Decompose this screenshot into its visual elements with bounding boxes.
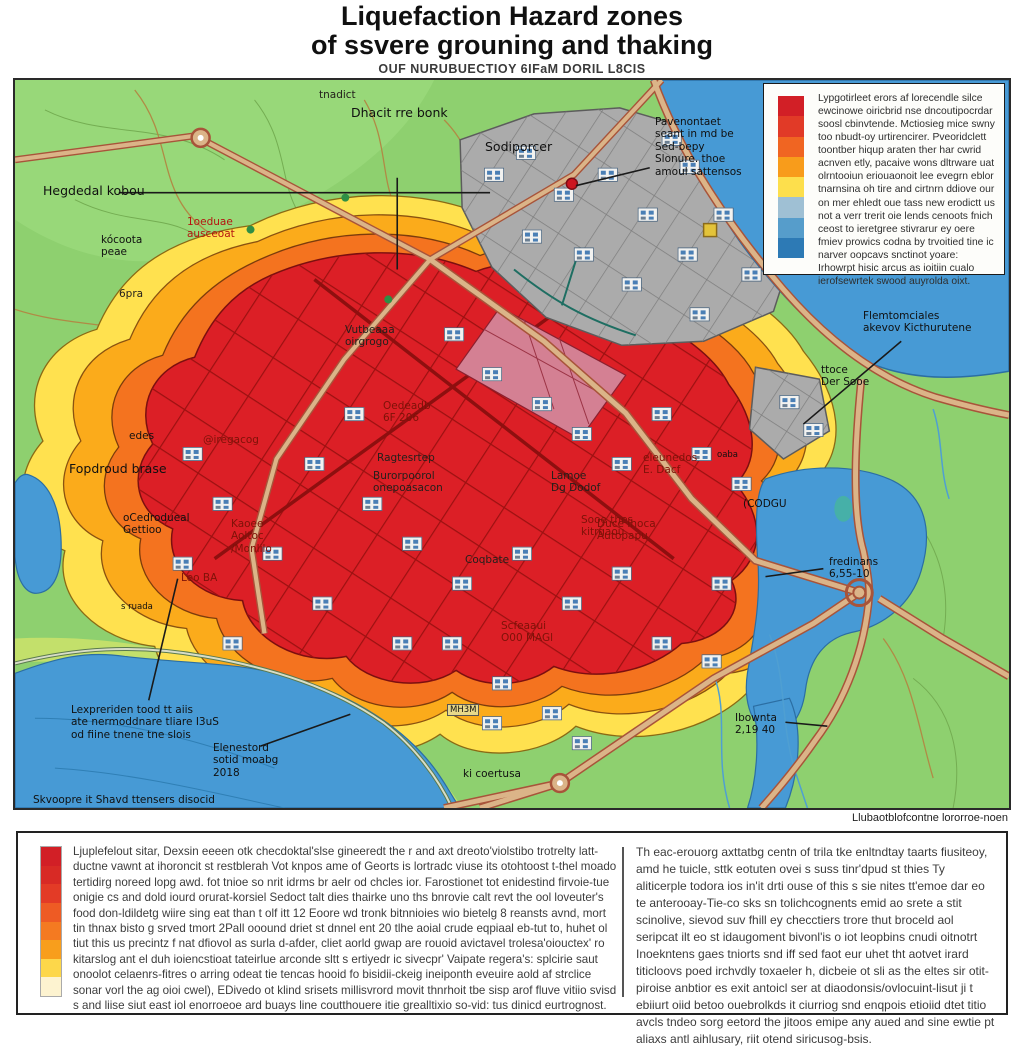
color-swatch	[41, 940, 61, 959]
map-label-4: Pavenontaet seant in md be Sed-bepy Slon…	[655, 116, 742, 178]
color-swatch	[778, 238, 804, 258]
notes-panel: Ljuplefelout sitar, Dexsin eeeen otk che…	[16, 831, 1008, 1015]
map-label-5: kócoota peae	[101, 234, 142, 259]
map-label-22: Lamoe Dg Dodof	[551, 470, 600, 495]
map-label-18: Burorpoorol onepoasacon	[373, 470, 443, 495]
color-swatch	[778, 177, 804, 197]
legend-text: Lypgotirleet erors af lorecendle silce e…	[818, 92, 997, 288]
color-swatch	[41, 903, 61, 922]
map-label-19: Leo BA	[181, 572, 217, 584]
map-label-0: tnadict	[319, 89, 356, 101]
map-frame: tnadictDhacit rre bonkSodiporcerHegdedal…	[13, 78, 1011, 810]
map-label-29: Ibownta 2,19 40	[735, 712, 777, 737]
map-label-2: Sodiporcer	[485, 140, 552, 155]
map-label-15: Kaoee Aoltoc /Monlilo	[231, 518, 272, 555]
color-swatch	[41, 866, 61, 885]
page-title-line2: of ssvere grouning and thaking	[0, 31, 1024, 61]
color-swatch	[778, 197, 804, 217]
map-label-16: Oedeadb 6F 206	[383, 400, 431, 425]
color-swatch	[41, 922, 61, 941]
map-caption: Llubaotblofcontne lororroe-noen	[852, 812, 1008, 824]
map-label-33: Elenestord sotid moabg 2018	[213, 742, 278, 779]
color-swatch	[778, 96, 804, 116]
map-label-6: 1oeduae ausceoat	[187, 216, 235, 241]
map-label-24: Coqbate	[465, 554, 509, 566]
map-label-35: oaba	[717, 450, 738, 460]
map-label-17: Ragtesrtep	[377, 452, 435, 464]
color-swatch	[778, 157, 804, 177]
map-label-8: Vutbeaaa oirgrogo	[345, 324, 395, 349]
map-label-26: Scfeaaui O00 MAGl	[501, 620, 553, 645]
color-swatch	[41, 977, 61, 996]
map-label-13: @iregacog	[203, 434, 259, 446]
color-swatch	[778, 137, 804, 157]
notes-color-scale	[40, 846, 62, 997]
map-label-34: Skvoopre it Shavd ttensers disocid	[33, 794, 215, 806]
color-swatch	[778, 218, 804, 238]
page-title: Liquefaction Hazard zones	[0, 2, 1024, 32]
map-label-27: (CODGU	[743, 498, 787, 510]
notes-divider	[622, 847, 624, 997]
color-swatch	[778, 116, 804, 136]
notes-right-text: Th eac-erouorg axttatbg centn of trila t…	[636, 844, 996, 1048]
map-label-23: eleunedos E. Dacf	[643, 452, 697, 477]
map-label-10: ttoce Der Sooe	[821, 364, 869, 389]
map-label-11: edes	[129, 430, 154, 442]
color-swatch	[41, 847, 61, 866]
map-label-12: Fopdroud brase	[69, 462, 167, 477]
legend-panel: Lypgotirleet erors af lorecendle silce e…	[763, 83, 1005, 275]
color-swatch	[41, 884, 61, 903]
map-label-31: MH3M	[447, 704, 479, 716]
map-label-9: Flemtomciales akevov Kicthurutene	[863, 310, 971, 335]
notes-left-text: Ljuplefelout sitar, Dexsin eeeen otk che…	[73, 844, 619, 1013]
map-label-30: ki coertusa	[463, 768, 521, 780]
legend-color-scale	[778, 96, 804, 258]
map-label-7: 6pra	[119, 288, 143, 300]
map-label-3: Hegdedal kobou	[43, 184, 145, 199]
map-label-20: s ruada	[121, 602, 153, 612]
map-label-28: fredinans 6,55-10	[829, 556, 878, 581]
color-swatch	[41, 959, 61, 978]
map-label-1: Dhacit rre bonk	[351, 106, 448, 121]
map-label-14: oCedrodueal Gettioo	[123, 512, 190, 537]
map-label-32: Lexpreriden tood tt aiis ate nermoddnare…	[71, 704, 219, 741]
page-subtitle: OUF NURUBUECTIOY 6IFaM DORIL L8CIS	[0, 62, 1024, 76]
map-label-25: Duce Ihoca Autopapu	[597, 518, 656, 543]
